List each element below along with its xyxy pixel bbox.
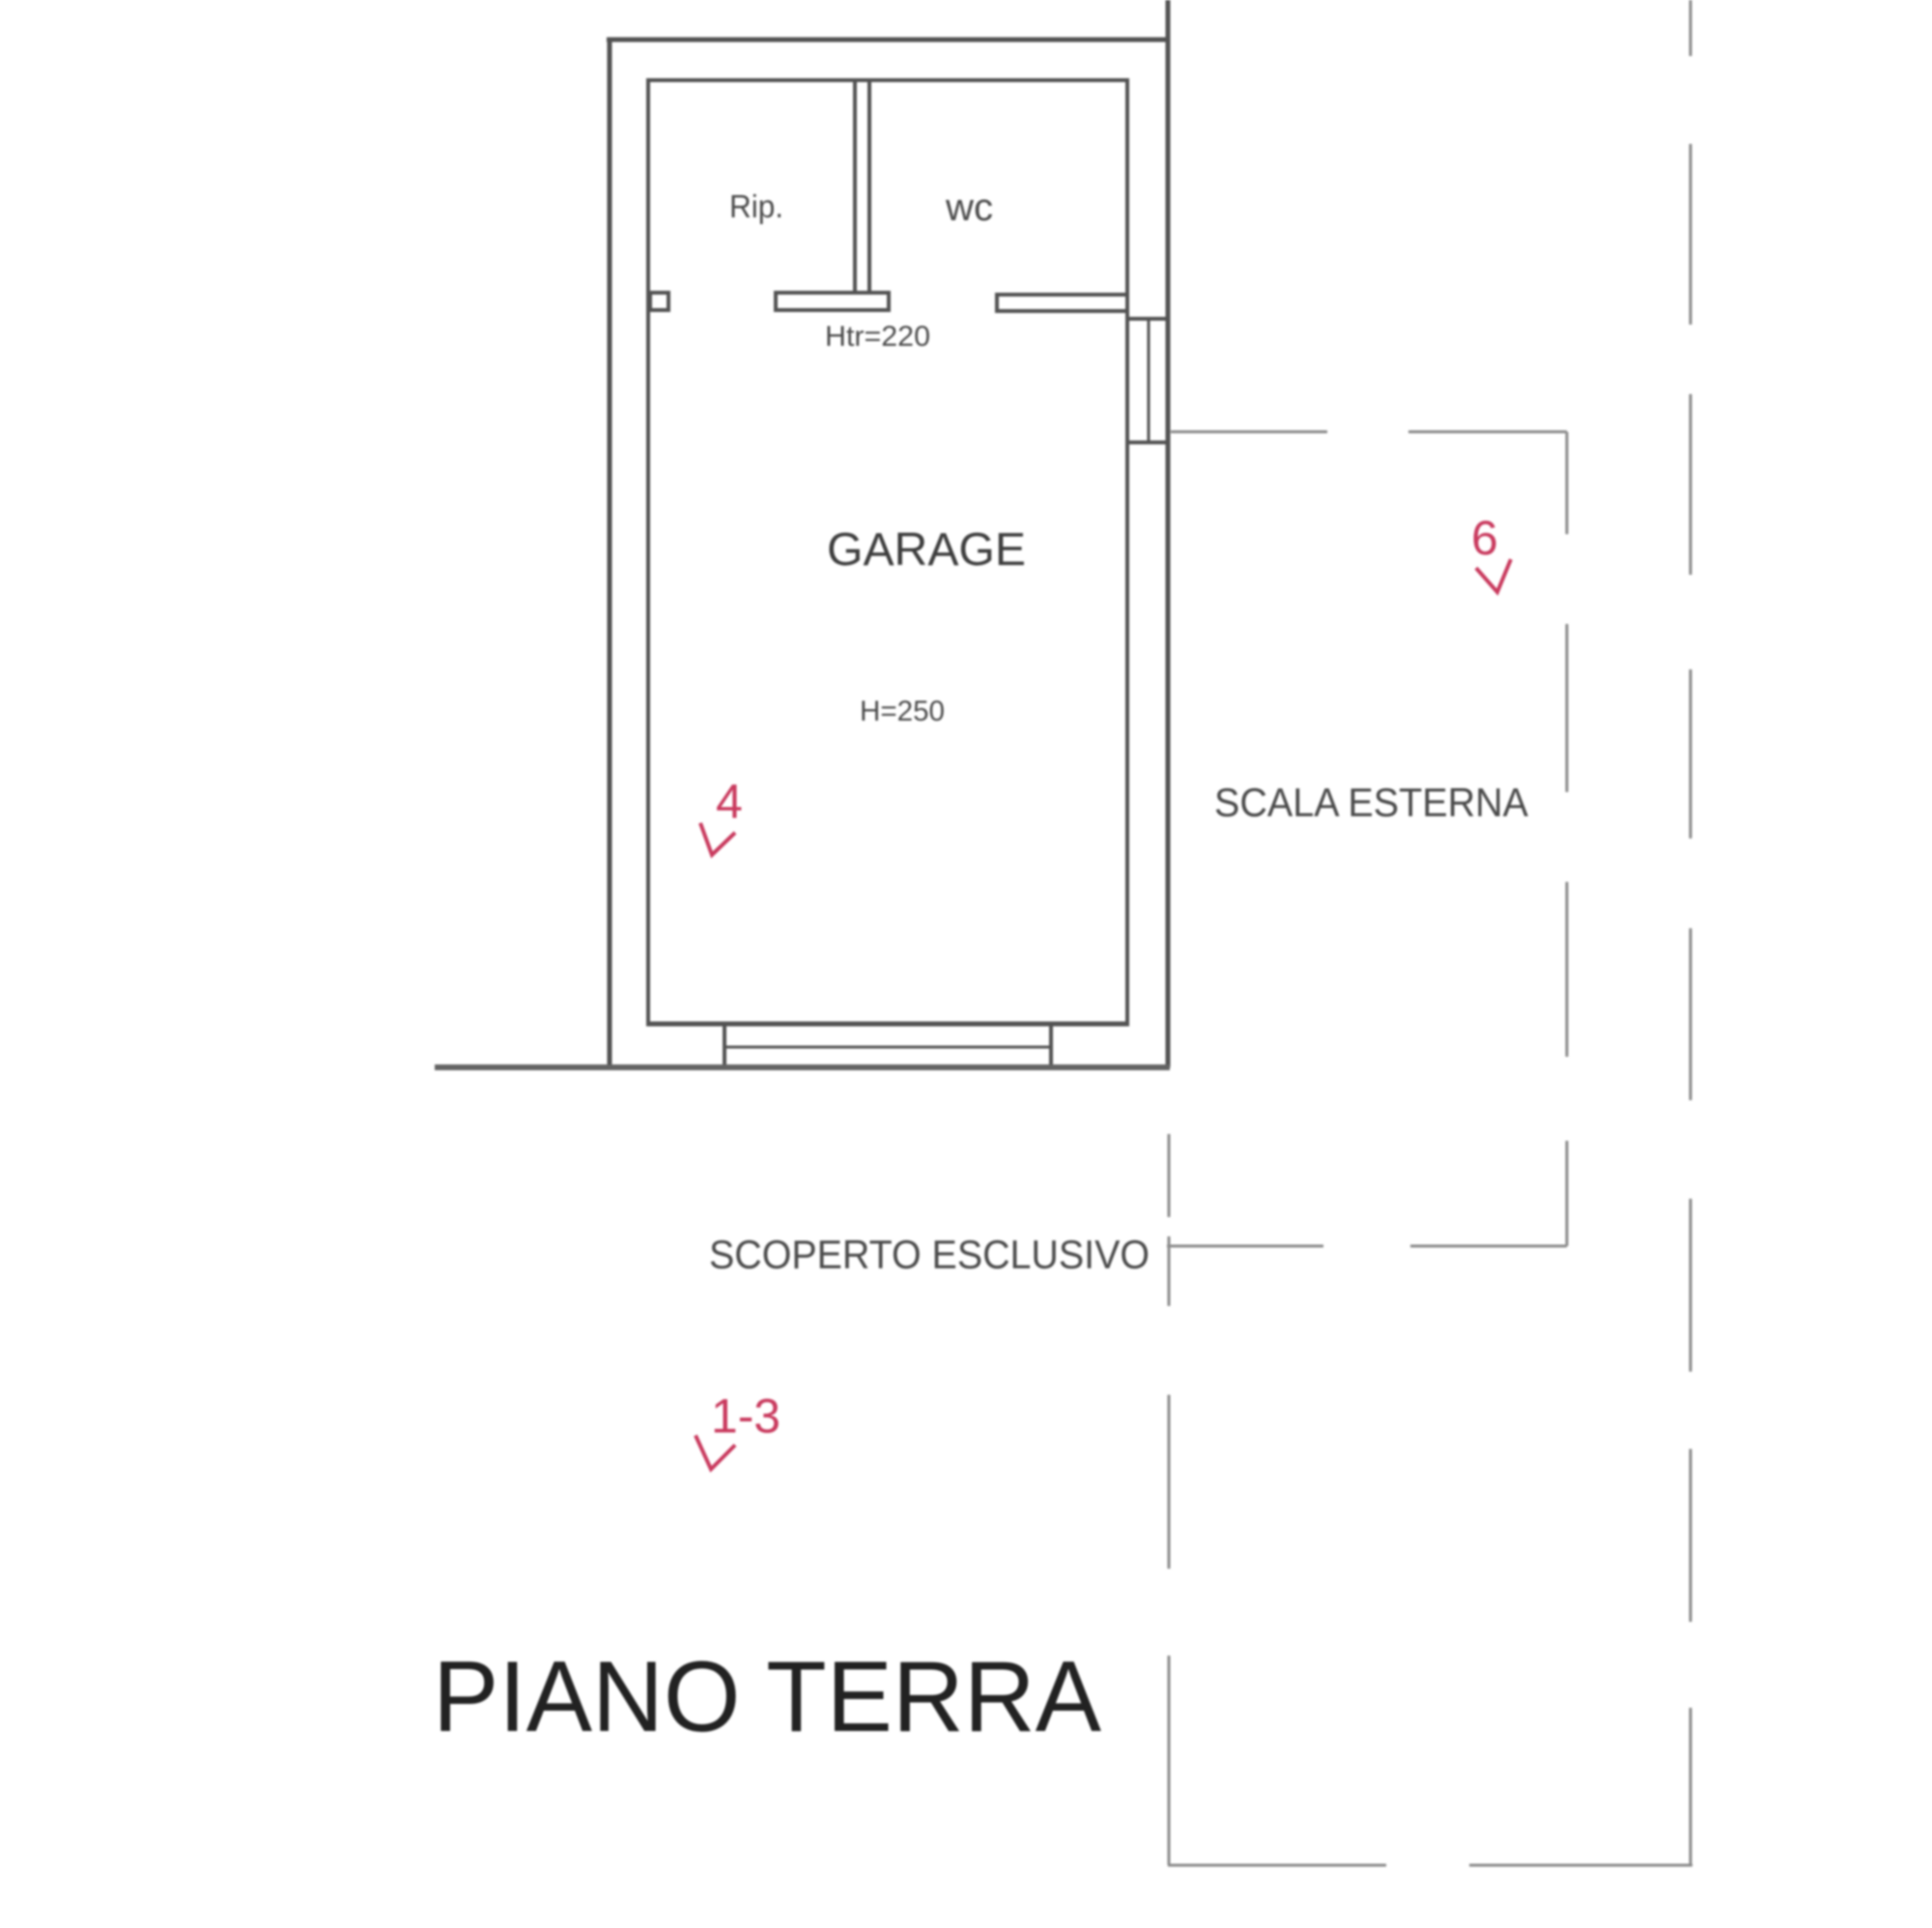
svg-text:wc: wc	[945, 186, 993, 229]
svg-text:SCALA ESTERNA: SCALA ESTERNA	[1214, 780, 1528, 825]
svg-text:H=250: H=250	[860, 695, 945, 727]
svg-text:4: 4	[716, 775, 743, 829]
svg-text:1-3: 1-3	[711, 1389, 781, 1443]
svg-text:GARAGE: GARAGE	[827, 525, 1026, 576]
svg-text:6: 6	[1471, 511, 1498, 565]
svg-text:Htr=220: Htr=220	[825, 321, 930, 353]
svg-text:SCOPERTO ESCLUSIVO: SCOPERTO ESCLUSIVO	[709, 1232, 1150, 1277]
svg-text:Rip.: Rip.	[729, 188, 783, 224]
svg-text:PIANO TERRA: PIANO TERRA	[433, 1641, 1102, 1753]
